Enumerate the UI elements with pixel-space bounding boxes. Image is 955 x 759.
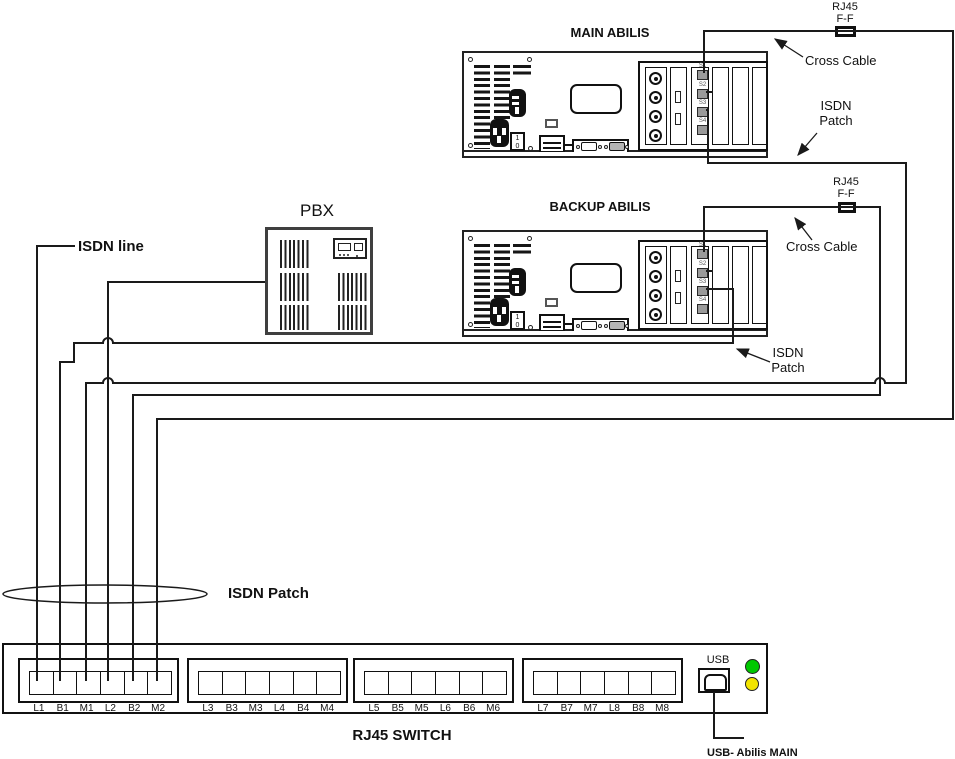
cross-cable-top-label: Cross Cable — [805, 53, 877, 68]
empty-slot — [732, 246, 749, 324]
bnc-connector — [649, 110, 662, 123]
switch-port-cell — [483, 671, 507, 695]
io-card-slot — [670, 67, 687, 145]
switch-port-cell — [148, 671, 172, 695]
io-card-slot — [670, 246, 687, 324]
power-pin — [502, 307, 506, 314]
main-isdn-patch-cable — [86, 110, 906, 681]
bnc-card-slot — [645, 67, 667, 145]
switch-port-cell — [605, 671, 629, 695]
rj45-port — [697, 286, 708, 296]
latch-tick — [563, 323, 572, 325]
blank-plate — [570, 263, 622, 293]
server-case: 1 0S1S2S3S4 — [462, 51, 768, 152]
isdn-line-cable — [37, 246, 75, 681]
switch-port-cell — [246, 671, 270, 695]
power-pin — [493, 307, 497, 314]
isdn-patch-bottom-label: ISDN Patch — [228, 585, 309, 602]
rj45-ff-coupler-mid — [838, 202, 856, 213]
rj45-port-label: S4 — [692, 297, 713, 303]
empty-slot — [712, 246, 729, 324]
empty-slot — [712, 67, 729, 145]
switch-port-cell — [436, 671, 460, 695]
rj45-ff-coupler-top — [835, 26, 856, 37]
server-case-base — [462, 152, 768, 158]
switch-port-group — [18, 658, 179, 703]
pbx-vent-grille — [280, 240, 309, 268]
power-pin — [512, 281, 519, 284]
latch-line — [543, 142, 561, 144]
rj45-ff-top-label: RJ45 F-F — [810, 1, 880, 25]
screw — [468, 236, 473, 241]
switch-port-cell — [652, 671, 676, 695]
green-led — [745, 659, 760, 674]
latch-line — [543, 321, 561, 323]
vent-grille — [474, 244, 490, 328]
switch-port-cell — [460, 671, 484, 695]
switch-port-cell — [317, 671, 341, 695]
isdn-patch-main-label: ISDN Patch — [801, 98, 871, 128]
power-outlet — [509, 268, 526, 296]
rj45-port — [697, 89, 708, 99]
usb-port-label: USB — [698, 654, 738, 666]
latch-tick — [563, 144, 572, 146]
usb-cable-label: USB- Abilis MAIN — [707, 747, 798, 759]
rj45-port-label: S2 — [692, 82, 713, 88]
voltage-selector — [545, 298, 558, 307]
bnc-pin — [654, 134, 658, 138]
power-pin — [497, 315, 501, 322]
switch-port-cell — [412, 671, 436, 695]
db9-connector — [609, 321, 625, 330]
switch-port-row — [364, 671, 507, 695]
screw — [468, 57, 473, 62]
pbx-dot — [339, 254, 341, 256]
isdn-line-label: ISDN line — [78, 238, 144, 255]
pbx-vent-grille — [280, 305, 309, 330]
vent-grille — [494, 65, 510, 121]
power-switch: 1 0 — [510, 311, 525, 330]
keyboard-connector-plate — [539, 135, 565, 153]
pbx-box — [265, 227, 373, 335]
screw-dot — [625, 145, 629, 149]
io-slot-opening — [675, 113, 681, 125]
power-outlet — [509, 89, 526, 117]
switch-port-label: M6 — [478, 704, 508, 714]
vent-grille — [494, 244, 510, 300]
switch-port-cell — [533, 671, 558, 695]
vent-grille — [513, 65, 531, 75]
rj45-port — [697, 249, 708, 259]
latch-line — [543, 326, 561, 328]
rj45-port-label: S3 — [692, 100, 713, 106]
screw-dot — [598, 324, 602, 328]
rj45-switch-box: L1B1M1L2B2M2L3B3M3L4B4M4L5B5M5L6B6M6L7B7… — [2, 643, 768, 714]
pbx-dot — [343, 254, 345, 256]
rj45-port-label: S4 — [692, 118, 713, 124]
backup-abilis-title: BACKUP ABILIS — [500, 199, 700, 214]
empty-slot — [752, 67, 767, 145]
pbx-display — [338, 243, 351, 251]
switch-port-cell — [294, 671, 318, 695]
keyboard-connector-plate — [539, 314, 565, 332]
isdn-patch-ellipse — [3, 585, 207, 603]
bnc-connector — [649, 129, 662, 142]
cross-cable-mid-arrow — [795, 218, 812, 240]
power-inlet — [490, 298, 509, 326]
bnc-pin — [654, 96, 658, 100]
screw — [527, 236, 532, 241]
pbx-vent-grille — [338, 273, 367, 301]
power-pin — [493, 128, 497, 135]
switch-port-cell — [389, 671, 413, 695]
switch-port-cell — [629, 671, 653, 695]
switch-port-cell — [29, 671, 54, 695]
rj45-port-label: S2 — [692, 261, 713, 267]
rj45-ff-mid-label: RJ45 F-F — [811, 176, 881, 200]
vent-grille — [474, 65, 490, 149]
bnc-connector — [649, 251, 662, 264]
screw — [468, 322, 473, 327]
switch-port-row — [533, 671, 676, 695]
pbx-dot — [356, 255, 358, 257]
rj45-port-label: S3 — [692, 279, 713, 285]
power-pin — [502, 128, 506, 135]
switch-port-cell — [558, 671, 582, 695]
switch-port-group — [353, 658, 514, 703]
bnc-pin — [654, 256, 658, 260]
rj45-port — [697, 268, 708, 278]
yellow-led — [745, 677, 759, 691]
screw — [528, 146, 533, 151]
bnc-pin — [654, 313, 658, 317]
bnc-pin — [654, 77, 658, 81]
db9-connector — [609, 142, 625, 151]
power-pin — [512, 275, 519, 278]
screw-dot — [604, 324, 608, 328]
isdn-patch-main-arrow — [798, 133, 817, 155]
rj45-port — [697, 304, 708, 314]
screw-dot — [604, 145, 608, 149]
screw — [468, 143, 473, 148]
bnc-pin — [654, 115, 658, 119]
power-pin — [512, 102, 519, 105]
switch-port-row — [198, 671, 341, 695]
rj45-port-label: S1 — [692, 242, 713, 248]
switch-port-cell — [581, 671, 605, 695]
switch-port-group — [187, 658, 348, 703]
empty-slot — [752, 246, 767, 324]
screw-dot — [598, 145, 602, 149]
empty-slot — [732, 67, 749, 145]
main-abilis-title: MAIN ABILIS — [510, 25, 710, 40]
rj45-switch-title: RJ45 SWITCH — [302, 727, 502, 744]
bnc-connector — [649, 91, 662, 104]
voltage-selector — [545, 119, 558, 128]
server-case-base — [462, 331, 768, 337]
bnc-pin — [654, 275, 658, 279]
bnc-connector — [649, 72, 662, 85]
cross-cable-mid-label: Cross Cable — [786, 239, 858, 254]
power-inlet — [490, 119, 509, 147]
switch-port-group — [522, 658, 683, 703]
switch-port-label: M2 — [143, 704, 173, 714]
network-diagram: MAIN ABILIS BACKUP ABILIS PBX ISDN line … — [0, 0, 955, 759]
rj45-port-label: S1 — [692, 63, 713, 69]
pbx-display — [354, 243, 363, 251]
switch-port-cell — [364, 671, 389, 695]
screw-dot — [576, 324, 580, 328]
io-slot-opening — [675, 292, 681, 304]
isdn-patch-backup-label: ISDN Patch — [753, 345, 823, 375]
switch-port-cell — [77, 671, 101, 695]
pbx-vent-grille — [338, 305, 367, 330]
bnc-card-slot — [645, 246, 667, 324]
bnc-connector — [649, 289, 662, 302]
pbx-dot — [347, 254, 349, 256]
backup-isdn-patch-cable — [60, 289, 733, 681]
pbx-vent-grille — [280, 273, 309, 301]
usb-socket — [704, 674, 727, 691]
screw — [528, 325, 533, 330]
screw-dot — [625, 324, 629, 328]
switch-port-label: M8 — [647, 704, 677, 714]
bnc-pin — [654, 294, 658, 298]
io-slot-opening — [675, 270, 681, 282]
db9-connector — [581, 321, 597, 330]
switch-port-cell — [270, 671, 294, 695]
vent-grille — [513, 244, 531, 254]
power-pin — [515, 286, 519, 293]
bnc-connector — [649, 308, 662, 321]
switch-port-cell — [54, 671, 78, 695]
power-pin — [512, 96, 519, 99]
switch-port-cell — [223, 671, 247, 695]
switch-port-cell — [125, 671, 149, 695]
blank-plate — [570, 84, 622, 114]
latch-line — [543, 147, 561, 149]
pbx-to-switch-cable — [108, 282, 265, 681]
pbx-title: PBX — [267, 201, 367, 221]
screw — [527, 57, 532, 62]
usb-port — [698, 668, 730, 693]
switch-port-row — [29, 671, 172, 695]
power-pin — [515, 107, 519, 114]
rj45-port — [697, 125, 708, 135]
switch-port-label: M4 — [312, 704, 342, 714]
switch-port-cell — [198, 671, 223, 695]
rj45-port — [697, 70, 708, 80]
server-case: 1 0S1S2S3S4 — [462, 230, 768, 331]
bnc-connector — [649, 270, 662, 283]
rj45-port — [697, 107, 708, 117]
cross-cable-top-arrow — [775, 39, 803, 57]
power-switch: 1 0 — [510, 132, 525, 151]
db9-connector — [581, 142, 597, 151]
screw-dot — [576, 145, 580, 149]
switch-port-cell — [101, 671, 125, 695]
power-pin — [497, 136, 501, 143]
io-slot-opening — [675, 91, 681, 103]
pbx-display-panel — [333, 238, 367, 259]
